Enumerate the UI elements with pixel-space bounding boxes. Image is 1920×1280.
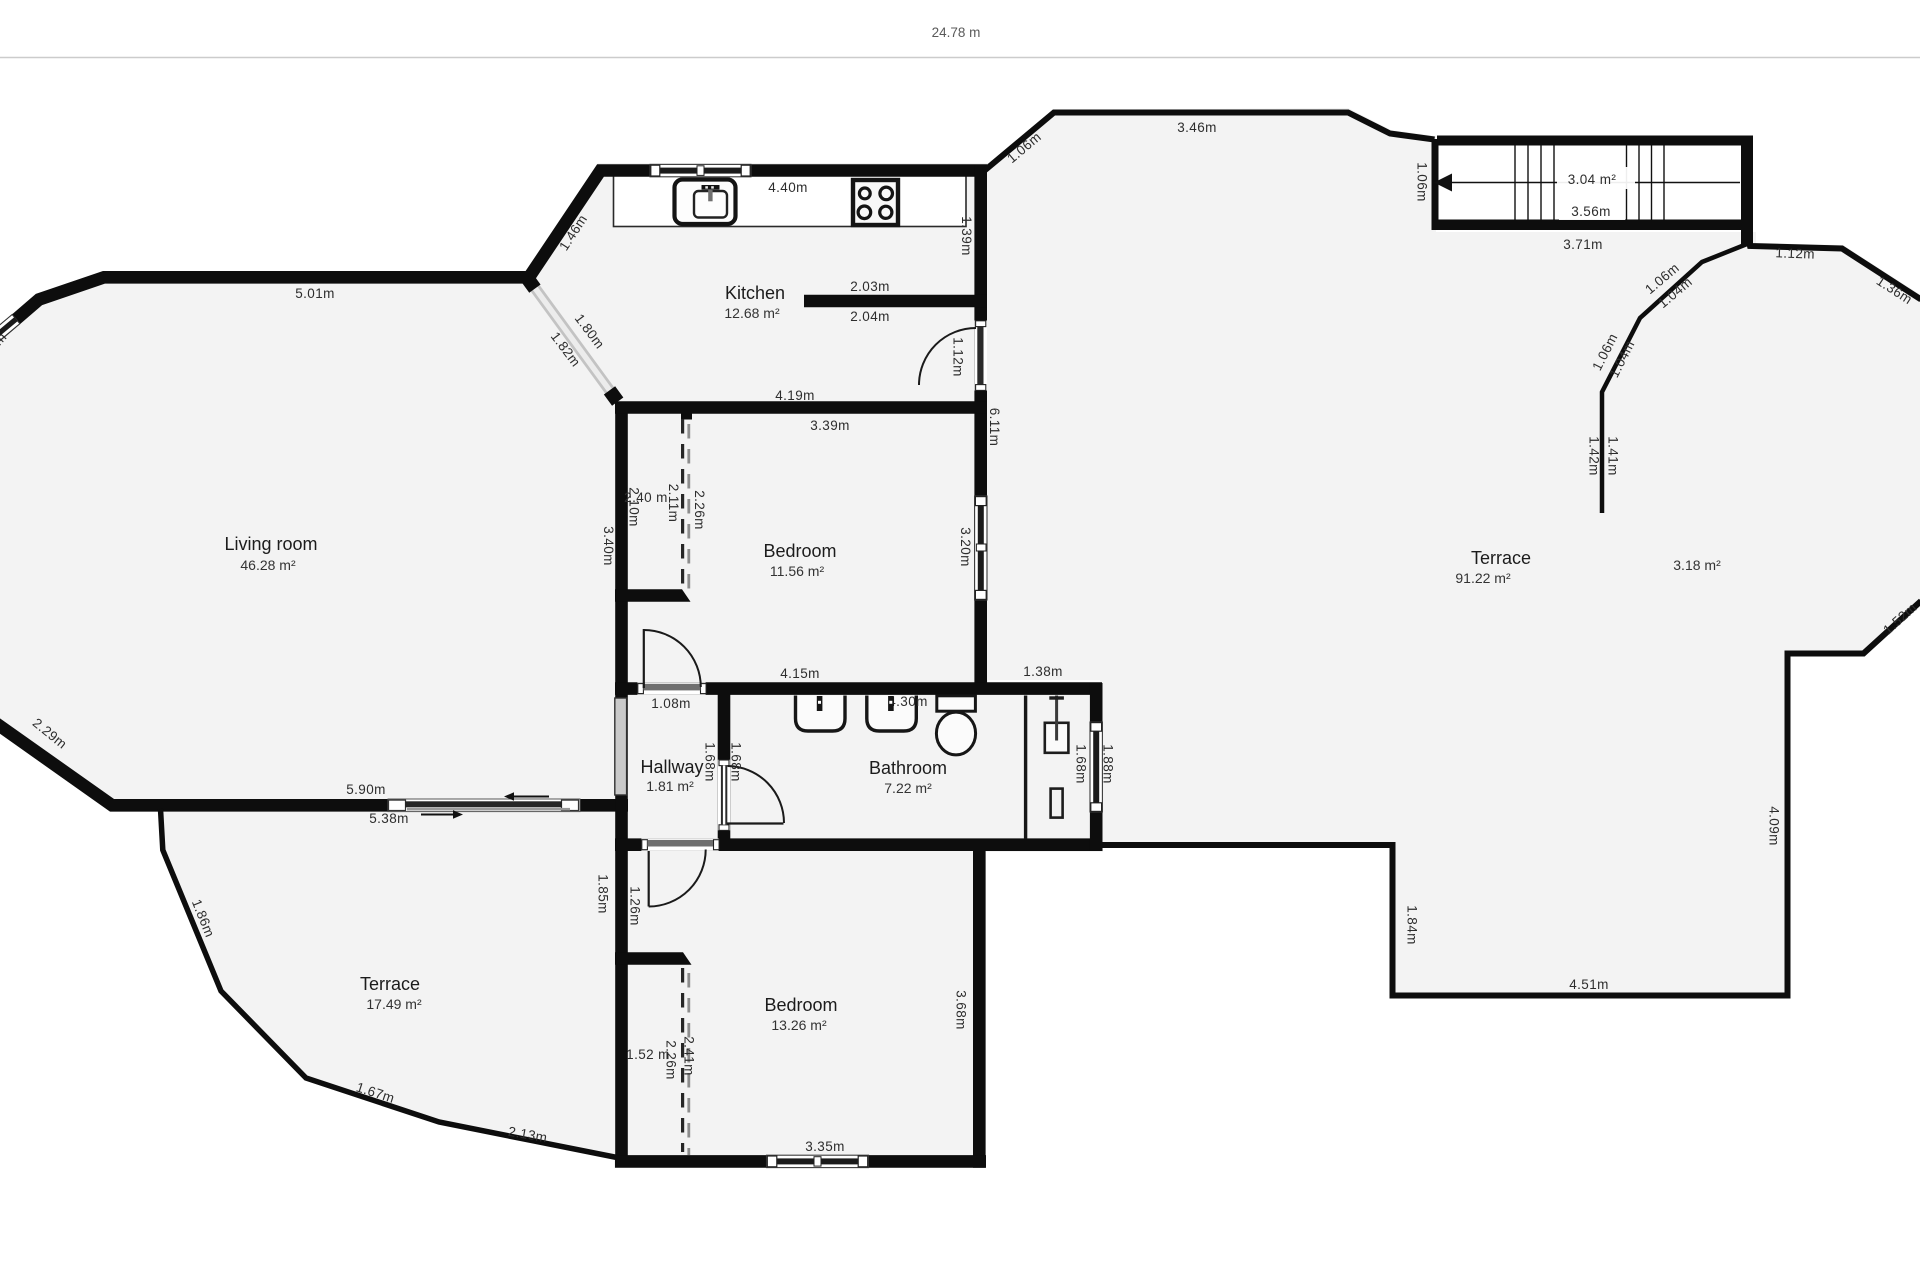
svg-text:2.26m: 2.26m [692,490,707,530]
svg-text:6.11m: 6.11m [987,408,1002,447]
svg-text:1.85m: 1.85m [596,874,611,914]
svg-text:1.26m: 1.26m [628,886,643,926]
svg-text:1.68m: 1.68m [703,742,718,782]
svg-text:3.39m: 3.39m [810,418,850,433]
svg-text:3.68m: 3.68m [954,990,969,1030]
svg-text:7.22 m²: 7.22 m² [884,780,932,796]
svg-text:2.41m: 2.41m [682,1036,697,1076]
svg-text:3.56m: 3.56m [1571,204,1611,219]
svg-text:1.42m: 1.42m [1587,436,1602,476]
svg-text:Terrace: Terrace [360,974,420,994]
svg-text:3.46m: 3.46m [1177,120,1217,135]
svg-text:5.38m: 5.38m [369,811,409,826]
svg-text:1.81 m²: 1.81 m² [646,778,694,794]
svg-text:1.88m: 1.88m [1101,744,1116,784]
svg-text:Living room: Living room [224,534,317,554]
svg-text:3.35m: 3.35m [805,1139,845,1154]
svg-text:5.90m: 5.90m [346,782,386,797]
svg-text:Terrace: Terrace [1471,548,1531,568]
svg-text:3.40m: 3.40m [601,526,616,566]
svg-text:1.68m: 1.68m [729,742,744,782]
svg-text:3.20m: 3.20m [958,527,973,567]
svg-text:Bedroom: Bedroom [763,541,836,561]
svg-text:1.06m: 1.06m [1415,162,1430,202]
svg-text:4.15m: 4.15m [780,666,820,681]
svg-text:2.03m: 2.03m [850,279,890,294]
svg-text:91.22 m²: 91.22 m² [1455,570,1511,586]
svg-text:1.08m: 1.08m [651,696,691,711]
svg-text:1.84m: 1.84m [1405,905,1420,945]
svg-text:1.38m: 1.38m [1023,664,1063,679]
svg-text:11.56 m²: 11.56 m² [770,563,825,579]
svg-text:1.41m: 1.41m [1606,436,1621,476]
svg-text:Bathroom: Bathroom [869,758,947,778]
svg-text:4.30m: 4.30m [888,694,928,709]
svg-text:3.18 m²: 3.18 m² [1673,557,1721,573]
svg-text:4.40m: 4.40m [768,180,808,195]
svg-text:12.68 m²: 12.68 m² [724,305,780,321]
svg-text:1.39m: 1.39m [959,216,974,256]
svg-text:2.10m: 2.10m [627,487,642,527]
svg-text:4.19m: 4.19m [775,388,815,403]
svg-text:17.49 m²: 17.49 m² [366,996,422,1012]
svg-text:3.04 m²: 3.04 m² [1568,172,1617,187]
svg-text:1.12m: 1.12m [1775,245,1815,261]
svg-text:Bedroom: Bedroom [764,995,837,1015]
svg-text:5.01m: 5.01m [295,286,335,301]
svg-text:4.09m: 4.09m [1767,806,1782,846]
svg-text:1.52 m: 1.52 m [626,1047,670,1062]
svg-text:4.51m: 4.51m [1569,977,1609,992]
svg-text:Hallway: Hallway [640,757,703,777]
svg-text:2.26m: 2.26m [664,1040,679,1080]
svg-text:2.11m: 2.11m [666,484,681,523]
svg-text:46.28 m²: 46.28 m² [240,557,296,573]
svg-text:13.26 m²: 13.26 m² [771,1017,827,1033]
svg-text:3.71m: 3.71m [1563,237,1603,252]
svg-text:Kitchen: Kitchen [725,283,785,303]
svg-text:1.12m: 1.12m [951,337,966,377]
svg-text:2.04m: 2.04m [850,309,890,324]
svg-text:1.68m: 1.68m [1074,744,1089,784]
svg-text:24.78 m: 24.78 m [932,25,981,40]
